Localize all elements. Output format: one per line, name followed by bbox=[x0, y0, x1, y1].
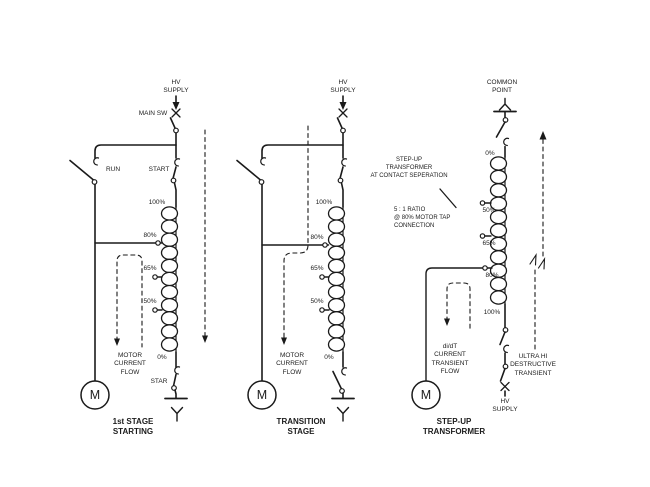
break-marks-icon bbox=[530, 255, 545, 269]
stage1-main-sw-label: MAIN SW bbox=[139, 110, 168, 118]
terminal bbox=[259, 180, 264, 185]
stage1-hv-supply-label: HV SUPPLY bbox=[163, 79, 188, 96]
transient-flow-path bbox=[447, 283, 470, 329]
tap-terminal bbox=[320, 275, 324, 279]
tap-terminal bbox=[153, 275, 157, 279]
stage3-tap-100-label: 100% bbox=[484, 309, 501, 317]
star-point-inverted-icon bbox=[500, 99, 511, 111]
supply-arrow-down-icon bbox=[173, 102, 180, 110]
tap-terminal bbox=[156, 241, 160, 245]
star-point-icon bbox=[172, 408, 183, 422]
tap-terminal bbox=[323, 243, 327, 247]
stage2-flow-label: MOTOR CURRENT FLOW bbox=[276, 352, 308, 377]
stage2-tap-100-label: 100% bbox=[316, 199, 333, 207]
stage1-flow-label: MOTOR CURRENT FLOW bbox=[114, 352, 146, 377]
open-switch-blade bbox=[497, 122, 506, 137]
autotransformer-coil bbox=[491, 157, 507, 304]
run-contact-hook bbox=[261, 158, 266, 165]
stage1-tap-50-label: 50% bbox=[143, 298, 156, 306]
annotation-pointer-line bbox=[440, 189, 456, 208]
stage1-caption: 1st STAGE STARTING bbox=[113, 417, 154, 437]
branch-to-run bbox=[262, 145, 343, 158]
flow-arrow-down-icon bbox=[202, 336, 208, 344]
stage3-flow-label: di/dT CURRENT TRANSIENT FLOW bbox=[432, 343, 469, 377]
autotransformer-coil bbox=[162, 207, 178, 351]
stage1-tap-80-label: 80% bbox=[143, 232, 156, 240]
stage2-tap-65-label: 65% bbox=[310, 265, 323, 273]
start-switch-blade bbox=[340, 167, 343, 179]
stage2-tap-0-label: 0% bbox=[324, 354, 333, 362]
stage2-hv-supply-label: HV SUPPLY bbox=[330, 79, 355, 96]
wire bbox=[342, 183, 344, 207]
stage1-motor-label: M bbox=[90, 389, 100, 402]
tap-terminal bbox=[320, 308, 324, 312]
terminal bbox=[338, 178, 343, 183]
star-switch-blade-open bbox=[333, 372, 342, 390]
start-contact-hook bbox=[342, 159, 347, 166]
stage3-note-transformer: STEP-UP TRANSFORMER AT CONTACT SEPERATIO… bbox=[370, 157, 447, 180]
branch-to-run bbox=[95, 145, 176, 158]
fuse-x-icon bbox=[339, 109, 347, 117]
contact-hook bbox=[504, 345, 509, 352]
circuit-linework bbox=[0, 0, 650, 487]
start-contact-hook bbox=[175, 159, 180, 166]
terminal bbox=[174, 128, 179, 133]
flow-arrow-down-icon bbox=[281, 338, 287, 346]
stage3-ultra-hi-label: ULTRA HI DESTRUCTIVE TRANSIENT bbox=[510, 353, 556, 378]
stage3-caption: STEP-UP TRANSFORMER bbox=[423, 417, 485, 437]
tap-terminal bbox=[480, 201, 484, 205]
run-switch-blade bbox=[237, 161, 261, 181]
stage3-common-point-label: COMMON POINT bbox=[487, 79, 517, 96]
contact-hook bbox=[504, 138, 509, 145]
stage2-tap-80-label: 80% bbox=[310, 234, 323, 242]
stage1-tap-100-label: 100% bbox=[149, 199, 166, 207]
schematic-canvas: HV SUPPLY MAIN SW RUN START 100% 80% 65%… bbox=[0, 0, 650, 487]
stage2-motor-label: M bbox=[257, 389, 267, 402]
stage3-hv-supply-label: HV SUPPLY bbox=[492, 398, 517, 415]
flow-arrow-up-icon bbox=[540, 131, 547, 140]
fuse-x-icon bbox=[501, 383, 509, 391]
stage1-tap-65-label: 65% bbox=[143, 265, 156, 273]
terminal bbox=[92, 180, 97, 185]
star-switch-blade bbox=[174, 375, 177, 387]
star-contact-hook bbox=[175, 367, 180, 374]
tap-terminal bbox=[483, 266, 487, 270]
stage3-tap-65-label: 65% bbox=[482, 240, 495, 248]
motor-current-flow-path bbox=[117, 255, 142, 347]
stage3-motor-label: M bbox=[421, 389, 431, 402]
switch-blade bbox=[501, 369, 506, 382]
flow-arrow-down-icon bbox=[444, 319, 450, 327]
switch-blade bbox=[500, 332, 505, 345]
star-point-icon bbox=[338, 408, 349, 422]
fuse-x-icon bbox=[172, 109, 180, 117]
stage1-start-label: START bbox=[149, 166, 170, 174]
main-switch-blade bbox=[338, 118, 343, 128]
stage1-run-label: RUN bbox=[106, 166, 120, 174]
stage2-caption: TRANSITION STAGE bbox=[277, 417, 326, 437]
supply-arrow-down-icon bbox=[340, 102, 347, 110]
run-switch-blade bbox=[70, 161, 94, 181]
wire bbox=[175, 390, 176, 398]
stage3-tap-50-label: 50% bbox=[482, 207, 495, 215]
terminal bbox=[171, 178, 176, 183]
stage3-note-ratio: 5 : 1 RATIO @ 80% MOTOR TAP CONNECTION bbox=[394, 207, 450, 230]
autotransformer-coil bbox=[329, 207, 345, 351]
stage1-star-label: STAR bbox=[151, 378, 168, 386]
tap-terminal bbox=[480, 234, 484, 238]
stage2-tap-50-label: 50% bbox=[310, 298, 323, 306]
stage3-tap-0-label: 0% bbox=[485, 150, 494, 158]
wire bbox=[175, 183, 177, 207]
start-switch-blade bbox=[173, 167, 176, 179]
terminal bbox=[341, 128, 346, 133]
main-switch-blade bbox=[171, 118, 176, 128]
tap-terminal bbox=[153, 308, 157, 312]
stage1-tap-0-label: 0% bbox=[157, 354, 166, 362]
motor-current-flow-path bbox=[284, 126, 308, 339]
stage3-tap-80-label: 80% bbox=[485, 272, 498, 280]
flow-arrow-down-icon bbox=[114, 339, 120, 347]
star-contact-hook bbox=[342, 368, 347, 375]
run-contact-hook bbox=[94, 158, 99, 165]
